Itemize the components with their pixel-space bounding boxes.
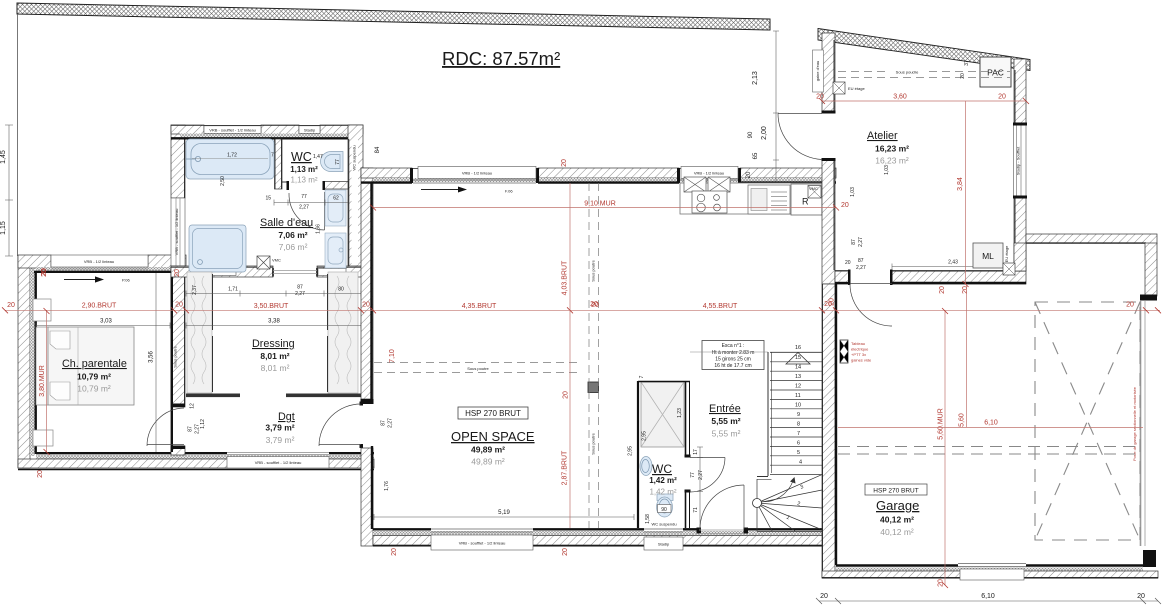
svg-text:10,79 m²: 10,79 m² xyxy=(77,372,111,382)
svg-text:1,12: 1,12 xyxy=(200,419,206,429)
svg-text:7,06 m²: 7,06 m² xyxy=(278,230,307,240)
svg-text:14: 14 xyxy=(795,365,801,371)
svg-text:20: 20 xyxy=(960,73,966,79)
svg-text:2,90.BRUT: 2,90.BRUT xyxy=(82,303,117,310)
svg-text:20: 20 xyxy=(845,260,851,266)
svg-text:VRB - soufflet - 1/2 linteau: VRB - soufflet - 1/2 linteau xyxy=(174,209,179,256)
svg-text:ML: ML xyxy=(982,251,994,261)
svg-text:77: 77 xyxy=(335,159,341,165)
svg-text:3,50.BRUT: 3,50.BRUT xyxy=(254,303,289,310)
svg-text:Stadip - Soufflet: Stadip - Soufflet xyxy=(1016,146,1021,175)
svg-text:VRB - soufflet - 1/2 linteau: VRB - soufflet - 1/2 linteau xyxy=(255,460,302,465)
svg-text:WC: WC xyxy=(652,462,672,476)
svg-text:20: 20 xyxy=(1137,593,1145,600)
svg-text:71: 71 xyxy=(693,507,699,513)
svg-text:PAC: PAC xyxy=(987,68,1004,78)
svg-text:9,10.MUR: 9,10.MUR xyxy=(584,201,616,208)
svg-text:2,27: 2,27 xyxy=(299,205,309,211)
svg-text:3,03: 3,03 xyxy=(100,319,112,325)
svg-text:Porte de garage sectionnelle e: Porte de garage sectionnelle et motorisé… xyxy=(1132,386,1137,461)
svg-text:1,42 m²: 1,42 m² xyxy=(649,476,677,485)
svg-text:F.06: F.06 xyxy=(505,189,513,194)
svg-text:Stadip: Stadip xyxy=(304,127,316,132)
svg-text:Ch. parentale: Ch. parentale xyxy=(62,358,127,370)
svg-text:84: 84 xyxy=(375,146,381,153)
svg-text:Stadip: Stadip xyxy=(658,542,670,547)
svg-text:4,35.BRUT: 4,35.BRUT xyxy=(462,303,497,310)
svg-text:Tableau: Tableau xyxy=(851,341,865,346)
svg-text:16,23 m²: 16,23 m² xyxy=(875,144,909,154)
svg-text:20: 20 xyxy=(820,593,828,600)
svg-text:40,12 m²: 40,12 m² xyxy=(880,527,914,537)
svg-text:Entrée: Entrée xyxy=(709,403,741,415)
svg-text:HSP 270 BRUT: HSP 270 BRUT xyxy=(873,488,918,495)
svg-text:3,38: 3,38 xyxy=(268,319,280,325)
svg-text:77: 77 xyxy=(301,194,307,200)
svg-text:P.06: P.06 xyxy=(122,278,130,283)
svg-text:VMC: VMC xyxy=(272,258,281,263)
svg-text:1,66: 1,66 xyxy=(316,224,322,234)
svg-text:6,10: 6,10 xyxy=(984,420,998,427)
svg-text:Sous poutre: Sous poutre xyxy=(591,432,596,454)
svg-text:3,56: 3,56 xyxy=(149,351,155,363)
svg-text:2,00: 2,00 xyxy=(761,126,768,140)
svg-text:1,58: 1,58 xyxy=(645,514,651,524)
svg-text:2,13: 2,13 xyxy=(752,71,759,85)
svg-text:20: 20 xyxy=(562,548,569,556)
svg-text:gaines vide: gaines vide xyxy=(851,358,872,363)
svg-text:VMC: VMC xyxy=(809,186,818,191)
svg-text:16: 16 xyxy=(795,345,801,351)
svg-text:4: 4 xyxy=(799,460,802,466)
svg-text:2,27: 2,27 xyxy=(858,237,864,247)
svg-text:87: 87 xyxy=(381,420,387,426)
svg-text:13: 13 xyxy=(795,374,801,380)
svg-text:20: 20 xyxy=(591,302,599,309)
svg-text:1,71: 1,71 xyxy=(228,287,238,293)
svg-text:20: 20 xyxy=(939,286,946,294)
svg-text:Sous poutre: Sous poutre xyxy=(467,366,489,371)
svg-text:9: 9 xyxy=(797,412,800,418)
svg-text:5,19: 5,19 xyxy=(498,510,510,516)
svg-text:WC suspendu: WC suspendu xyxy=(651,522,676,527)
svg-text:RDC: 87.57m²: RDC: 87.57m² xyxy=(442,48,560,69)
svg-text:49,89 m²: 49,89 m² xyxy=(471,457,505,467)
svg-text:20: 20 xyxy=(746,171,752,178)
svg-text:3,60: 3,60 xyxy=(893,94,907,101)
svg-text:1,15: 1,15 xyxy=(0,221,7,235)
svg-text:VRB - 1/2 linteau: VRB - 1/2 linteau xyxy=(694,171,724,176)
svg-text:Salle d'eau: Salle d'eau xyxy=(260,217,313,229)
svg-text:77: 77 xyxy=(690,472,696,478)
svg-text:37: 37 xyxy=(964,60,970,66)
svg-text:15: 15 xyxy=(265,196,271,202)
svg-text:7: 7 xyxy=(639,375,645,378)
svg-text:VRB - 1/2 linteau: VRB - 1/2 linteau xyxy=(462,171,492,176)
svg-text:20: 20 xyxy=(362,302,370,309)
svg-text:87: 87 xyxy=(297,285,303,291)
svg-text:VRB - soufflet - 1/2 linteau: VRB - soufflet - 1/2 linteau xyxy=(209,127,256,132)
svg-text:HSP 270 BRUT: HSP 270 BRUT xyxy=(465,409,521,418)
svg-text:EU étage: EU étage xyxy=(848,86,865,91)
svg-text:15 girons 25 cm: 15 girons 25 cm xyxy=(715,357,751,363)
svg-text:20: 20 xyxy=(391,548,398,556)
svg-text:20: 20 xyxy=(998,94,1006,101)
svg-text:1,47: 1,47 xyxy=(313,154,323,160)
svg-text:20: 20 xyxy=(841,202,849,209)
svg-text:90: 90 xyxy=(748,131,754,138)
svg-text:Sous poutre: Sous poutre xyxy=(591,259,596,281)
svg-text:49,89 m²: 49,89 m² xyxy=(471,445,505,455)
svg-text:5,55 m²: 5,55 m² xyxy=(711,416,740,426)
svg-text:3,80.MUR: 3,80.MUR xyxy=(39,365,46,397)
svg-text:65: 65 xyxy=(753,152,759,159)
svg-text:17: 17 xyxy=(693,449,699,455)
svg-text:20: 20 xyxy=(1126,302,1134,309)
svg-text:12: 12 xyxy=(795,384,801,390)
svg-text:87: 87 xyxy=(858,258,864,264)
svg-text:5: 5 xyxy=(797,450,800,456)
svg-text:Sous poudre: Sous poudre xyxy=(896,70,919,75)
svg-text:7: 7 xyxy=(271,153,274,159)
svg-text:20: 20 xyxy=(938,579,945,587)
svg-text:Garage: Garage xyxy=(876,498,919,513)
svg-text:+PTT 3x: +PTT 3x xyxy=(851,352,866,357)
svg-text:2,27: 2,27 xyxy=(295,291,305,297)
svg-text:3,79 m²: 3,79 m² xyxy=(265,423,294,433)
svg-text:2,37: 2,37 xyxy=(192,285,198,295)
svg-text:20: 20 xyxy=(174,269,181,277)
svg-text:6: 6 xyxy=(797,441,800,447)
svg-text:5,60.MUR: 5,60.MUR xyxy=(938,408,945,440)
svg-text:WC: WC xyxy=(291,150,312,164)
svg-text:4,03.BRUT: 4,03.BRUT xyxy=(562,260,569,295)
svg-text:15: 15 xyxy=(795,355,801,361)
svg-text:WC suspendu: WC suspendu xyxy=(352,145,357,170)
svg-text:20: 20 xyxy=(962,286,969,294)
svg-text:20: 20 xyxy=(41,268,48,276)
svg-text:VRB - soufflet - 1/2 linteau: VRB - soufflet - 1/2 linteau xyxy=(459,541,506,546)
svg-text:5,60: 5,60 xyxy=(959,413,966,427)
svg-text:20: 20 xyxy=(175,302,183,309)
svg-text:Dressing: Dressing xyxy=(252,338,295,350)
svg-text:2,27: 2,27 xyxy=(856,265,866,271)
svg-text:20: 20 xyxy=(37,470,44,478)
svg-text:16 ht de 17.7 cm: 16 ht de 17.7 cm xyxy=(714,363,751,369)
svg-text:11: 11 xyxy=(795,393,801,399)
svg-text:1,03: 1,03 xyxy=(850,187,856,197)
svg-text:10,79 m²: 10,79 m² xyxy=(77,384,111,394)
svg-text:62: 62 xyxy=(333,196,339,202)
svg-text:6,10: 6,10 xyxy=(981,593,995,600)
svg-text:2,43: 2,43 xyxy=(948,260,958,266)
svg-text:Sous poutre: Sous poutre xyxy=(173,345,178,367)
svg-text:87: 87 xyxy=(851,239,857,245)
svg-text:2,27: 2,27 xyxy=(388,418,394,428)
svg-text:5,55 m²: 5,55 m² xyxy=(712,429,741,439)
svg-text:12: 12 xyxy=(190,403,196,409)
svg-text:EU étage: EU étage xyxy=(1004,245,1009,262)
svg-text:2,95: 2,95 xyxy=(628,446,634,456)
svg-text:20: 20 xyxy=(563,391,570,399)
svg-text:1,76: 1,76 xyxy=(384,481,390,491)
svg-text:VRB - 1/2 linteau: VRB - 1/2 linteau xyxy=(84,259,114,264)
svg-text:10: 10 xyxy=(795,403,801,409)
svg-text:1,13 m²: 1,13 m² xyxy=(290,165,318,174)
svg-text:1,45: 1,45 xyxy=(0,150,7,164)
svg-text:40,12 m²: 40,12 m² xyxy=(880,515,914,525)
svg-text:Ht à monter 2.83 m: Ht à monter 2.83 m xyxy=(712,350,755,356)
svg-text:7: 7 xyxy=(797,431,800,437)
svg-text:1,13 m²: 1,13 m² xyxy=(290,176,317,185)
svg-text:OPEN SPACE: OPEN SPACE xyxy=(451,429,535,444)
svg-text:Esca n°1 :: Esca n°1 : xyxy=(722,343,745,349)
svg-text:1,42 m²: 1,42 m² xyxy=(649,488,676,497)
svg-text:20: 20 xyxy=(816,94,824,101)
svg-text:1,23: 1,23 xyxy=(677,408,683,418)
svg-text:1,03: 1,03 xyxy=(884,165,890,175)
svg-text:2,95: 2,95 xyxy=(642,431,648,441)
svg-text:90: 90 xyxy=(661,507,667,513)
svg-text:2,50: 2,50 xyxy=(220,176,226,186)
svg-text:16,23 m²: 16,23 m² xyxy=(875,156,909,166)
svg-text:2,87.BRUT: 2,87.BRUT xyxy=(562,450,569,485)
svg-text:Atelier: Atelier xyxy=(867,130,898,142)
svg-text:87: 87 xyxy=(188,426,194,432)
svg-text:8: 8 xyxy=(797,422,800,428)
svg-text:20: 20 xyxy=(829,298,836,306)
svg-text:20: 20 xyxy=(7,302,15,309)
svg-text:7,06 m²: 7,06 m² xyxy=(279,242,308,252)
svg-text:80: 80 xyxy=(338,287,344,293)
svg-text:8,01 m²: 8,01 m² xyxy=(261,363,290,373)
svg-text:3,84: 3,84 xyxy=(957,177,964,191)
svg-text:7,10: 7,10 xyxy=(389,349,396,363)
svg-text:2,27: 2,27 xyxy=(698,470,704,480)
svg-text:4,55.BRUT: 4,55.BRUT xyxy=(703,303,738,310)
svg-text:20: 20 xyxy=(561,159,568,167)
svg-text:Dgt: Dgt xyxy=(278,411,295,423)
svg-text:électrique: électrique xyxy=(851,347,869,352)
svg-text:3,79 m²: 3,79 m² xyxy=(266,435,295,445)
svg-text:gaine d'eau: gaine d'eau xyxy=(815,61,820,82)
svg-text:8,01 m²: 8,01 m² xyxy=(260,351,289,361)
svg-text:1,72: 1,72 xyxy=(227,153,237,159)
